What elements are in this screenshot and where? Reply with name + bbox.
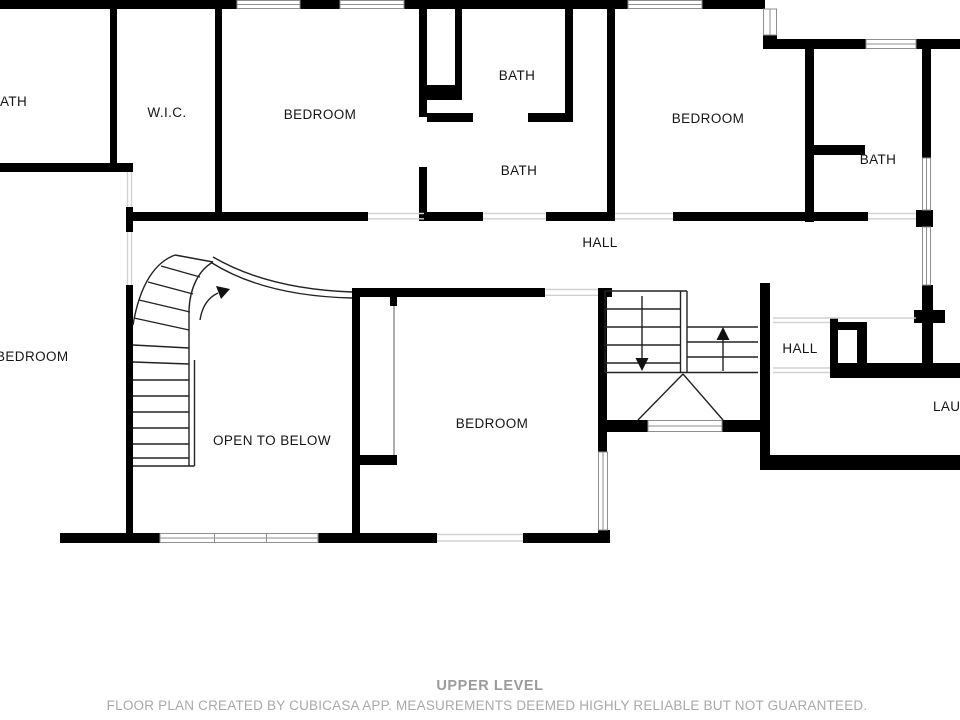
- background: [0, 0, 960, 720]
- wall-segment: [358, 455, 397, 465]
- room-label-bath-right: BATH: [860, 152, 897, 167]
- wall-segment: [110, 9, 117, 163]
- room-label-hall-main: HALL: [582, 235, 617, 250]
- wall-segment: [352, 288, 545, 297]
- room-label-bath-top-left: ATH: [0, 94, 27, 109]
- wall-segment: [424, 212, 483, 221]
- wall-segment: [857, 330, 867, 363]
- wall-segment: [702, 0, 765, 9]
- window: [923, 158, 931, 210]
- room-label-hall-right: HALL: [782, 341, 817, 356]
- wall-segment: [770, 39, 866, 49]
- wall-segment: [760, 455, 960, 470]
- wall-segment: [126, 212, 368, 221]
- wall-segment: [838, 322, 867, 330]
- wall-segment: [404, 0, 628, 9]
- wall-segment: [830, 363, 960, 378]
- room-label-bedroom-left: BEDROOM: [0, 349, 69, 364]
- wall-segment: [427, 113, 473, 122]
- wall-segment: [607, 9, 615, 221]
- wall-segment: [922, 49, 931, 158]
- wall-segment: [300, 0, 340, 9]
- room-label-bedroom-top-right: BEDROOM: [672, 111, 745, 126]
- wall-segment: [318, 533, 437, 543]
- wall-segment: [126, 285, 133, 533]
- floor-plan-canvas: ATH W.I.C. BEDROOM BATH BATH BEDROOM BAT…: [0, 0, 960, 720]
- wall-segment: [673, 212, 868, 221]
- wall-segment: [523, 533, 610, 543]
- wall-segment: [722, 420, 762, 432]
- wall-segment: [427, 85, 455, 100]
- wall-segment: [528, 113, 568, 122]
- room-label-bath-lower: BATH: [501, 163, 538, 178]
- wall-segment: [419, 9, 427, 117]
- wall-segment: [0, 163, 133, 172]
- wall-segment: [916, 39, 960, 49]
- room-label-wic: W.I.C.: [147, 105, 186, 120]
- window: [648, 421, 722, 432]
- window: [628, 1, 702, 9]
- footer-level-title: UPPER LEVEL: [436, 678, 543, 694]
- wall-segment: [546, 212, 607, 221]
- wall-segment: [916, 212, 933, 221]
- wall-segment: [605, 420, 648, 432]
- window: [866, 40, 916, 49]
- window: [340, 1, 404, 9]
- wall-segment: [60, 533, 160, 543]
- window: [764, 9, 777, 35]
- wall-segment: [455, 9, 462, 100]
- wall-segment: [805, 49, 814, 222]
- room-label-bedroom-center: BEDROOM: [456, 416, 529, 431]
- room-label-bedroom-top-middle: BEDROOM: [284, 107, 357, 122]
- wall-segment: [0, 0, 237, 9]
- footer-disclaimer: FLOOR PLAN CREATED BY CUBICASA APP. MEAS…: [107, 698, 868, 713]
- wall-segment: [814, 145, 865, 155]
- wall-segment: [830, 318, 838, 363]
- room-label-laundry: LAU: [933, 399, 960, 414]
- window: [599, 452, 608, 530]
- wall-segment: [215, 9, 222, 212]
- window: [923, 227, 931, 285]
- wall-segment: [760, 283, 770, 470]
- wall-segment: [914, 310, 945, 323]
- wall-segment: [390, 295, 397, 306]
- window: [160, 534, 318, 543]
- room-label-bath-upper: BATH: [499, 68, 536, 83]
- room-label-open-to-below: OPEN TO BELOW: [213, 433, 331, 448]
- window: [237, 1, 300, 9]
- wall-segment: [565, 9, 573, 122]
- wall-segment: [352, 288, 360, 543]
